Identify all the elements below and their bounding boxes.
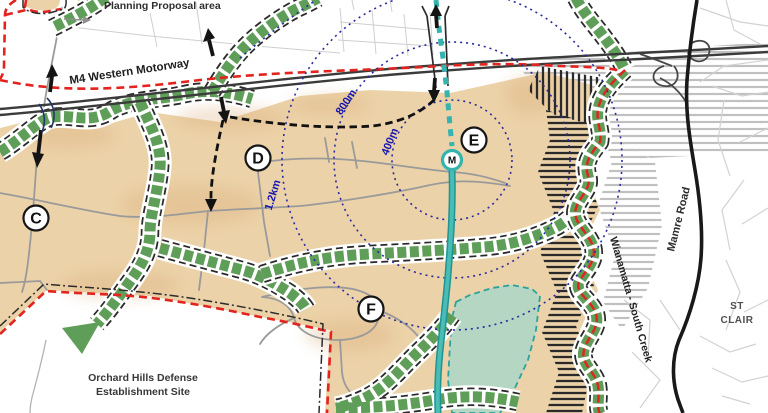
precinct-marker-d: D — [246, 146, 271, 171]
orchard-hills-label-line2: Establishment Site — [96, 386, 190, 398]
metro-station-letter: M — [448, 156, 456, 167]
precinct-letter-d: D — [252, 151, 264, 168]
map-canvas: Planning Proposal area M4 Western Motorw… — [0, 0, 768, 413]
planning-map: Planning Proposal area M4 Western Motorw… — [0, 0, 768, 413]
precinct-letter-c: C — [30, 211, 42, 228]
precinct-marker-f: F — [359, 297, 384, 322]
metro-station-marker: M — [443, 151, 462, 170]
orchard-hills-label-line1: Orchard Hills Defense — [88, 372, 198, 384]
precinct-letter-f: F — [366, 302, 376, 319]
precinct-letter-e: E — [469, 133, 480, 150]
precinct-marker-c: C — [24, 206, 49, 231]
st-clair-label-line2: CLAIR — [720, 315, 753, 326]
planning-proposal-label: Planning Proposal area — [104, 0, 221, 12]
st-clair-label-line1: ST — [730, 301, 744, 312]
precinct-marker-e: E — [462, 128, 487, 153]
